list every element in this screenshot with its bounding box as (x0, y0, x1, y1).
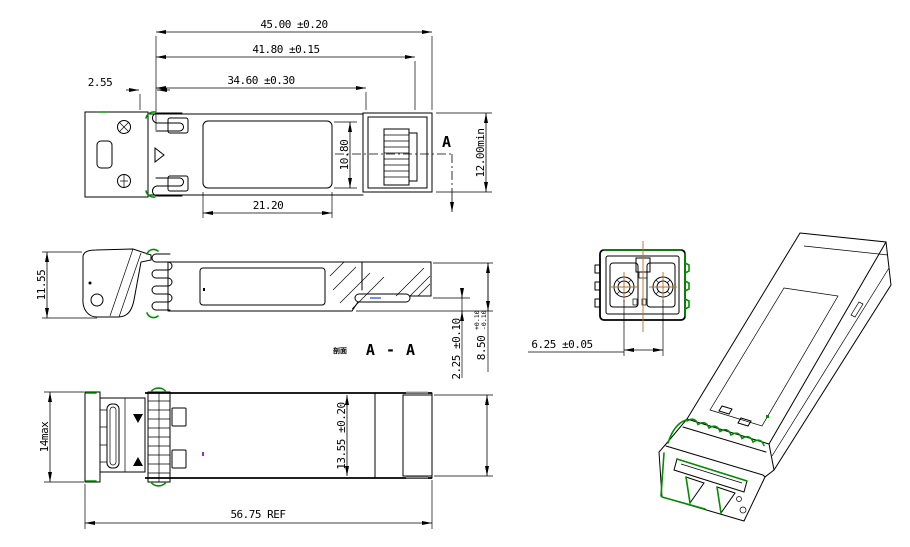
bottom-view-geometry (85, 388, 432, 486)
dim-body-width: 13.55 ±0.20 (335, 402, 348, 469)
top-view-geometry (85, 112, 452, 212)
dim-body-height: 8.50 (475, 336, 488, 361)
section-label-prefix: 剖面 (333, 346, 347, 355)
dim-latch-length: 41.80 ±0.15 (252, 43, 319, 56)
dim-port-clearance: 12.00min (474, 129, 487, 178)
bottom-view: 14max 13.55 ±0.20 56.75 REF (38, 388, 493, 529)
front-view: 6.25 ±0.05 (528, 241, 689, 356)
dim-body-height-tol-lower: -0.10 (480, 310, 488, 330)
top-view: 45.00 ±0.20 41.80 ±0.15 34.60 ±0.30 2.55… (85, 18, 492, 218)
engineering-drawing: 45.00 ±0.20 41.80 ±0.15 34.60 ±0.30 2.55… (0, 0, 910, 547)
dim-overall-length: 45.00 ±0.20 (260, 18, 327, 31)
bottom-view-dimensions: 14max 13.55 ±0.20 56.75 REF (38, 392, 493, 529)
section-marker-a: A (442, 133, 452, 151)
side-view-geometry (83, 249, 431, 318)
side-view-dimensions: 11.55 2.25 ±0.10 8.50 +0.10 -0.10 剖面 A -… (35, 252, 493, 380)
dim-front-offset: 2.55 (88, 76, 113, 89)
dim-bail-height: 11.55 (35, 270, 48, 301)
dim-label-length: 21.20 (253, 199, 284, 212)
side-view: 11.55 2.25 ±0.10 8.50 +0.10 -0.10 剖面 A -… (35, 249, 493, 380)
front-view-geometry (595, 241, 689, 332)
isometric-view (659, 233, 891, 521)
drawing-canvas: 45.00 ±0.20 41.80 ±0.15 34.60 ±0.30 2.55… (0, 0, 910, 547)
dim-body-length: 34.60 ±0.30 (227, 74, 294, 87)
dim-label-width: 10.80 (338, 140, 351, 171)
dim-front-width-max: 14max (38, 421, 51, 452)
section-label: A - A (366, 341, 416, 359)
dim-overall-length-ref: 56.75 REF (230, 508, 285, 521)
dim-fiber-pitch: 6.25 ±0.05 (531, 338, 592, 351)
dim-step-height: 2.25 ±0.10 (450, 318, 463, 379)
centerlines (610, 241, 677, 332)
